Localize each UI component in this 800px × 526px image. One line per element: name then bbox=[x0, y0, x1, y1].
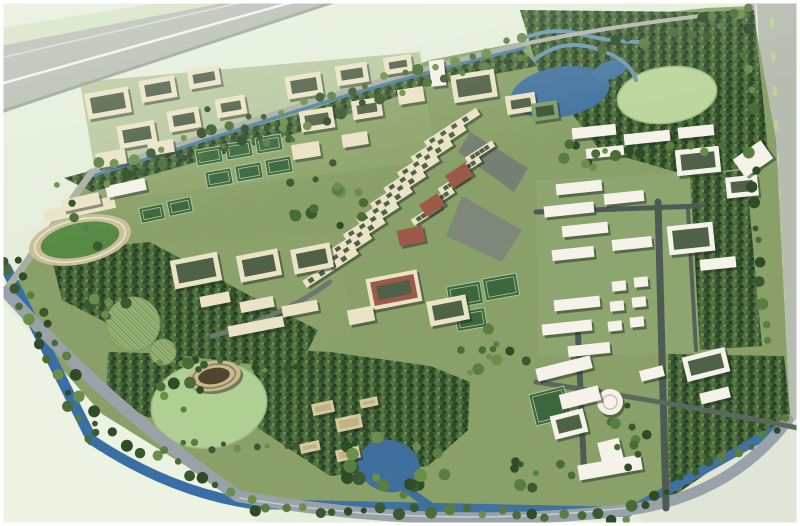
rendering-canvas bbox=[0, 0, 800, 526]
atmospheric-haze bbox=[0, 0, 800, 526]
campus-aerial-rendering bbox=[0, 0, 800, 526]
